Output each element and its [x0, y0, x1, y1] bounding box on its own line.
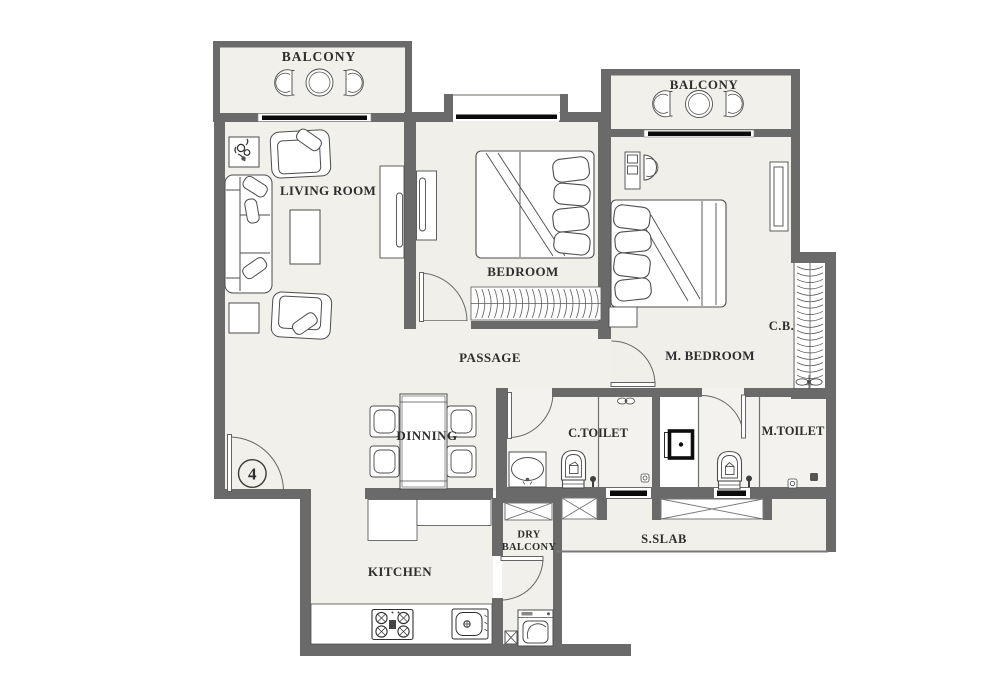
svg-text:C.B.: C.B. — [769, 319, 795, 333]
svg-text:C.TOILET: C.TOILET — [568, 426, 629, 440]
svg-text:M.TOILET: M.TOILET — [762, 424, 825, 438]
svg-text:LIVING ROOM: LIVING ROOM — [280, 183, 376, 198]
svg-text:BALCONY: BALCONY — [282, 49, 357, 64]
svg-text:4: 4 — [248, 465, 257, 484]
svg-text:DINNING: DINNING — [396, 428, 457, 443]
svg-text:DRY: DRY — [517, 530, 540, 541]
svg-text:KITCHEN: KITCHEN — [368, 564, 432, 579]
svg-text:BALCONY: BALCONY — [670, 77, 739, 92]
svg-text:BALCONY: BALCONY — [502, 542, 557, 553]
svg-text:S.SLAB: S.SLAB — [641, 532, 687, 546]
svg-text:PASSAGE: PASSAGE — [459, 350, 521, 365]
svg-text:M. BEDROOM: M. BEDROOM — [665, 348, 754, 363]
svg-text:BEDROOM: BEDROOM — [487, 264, 558, 279]
